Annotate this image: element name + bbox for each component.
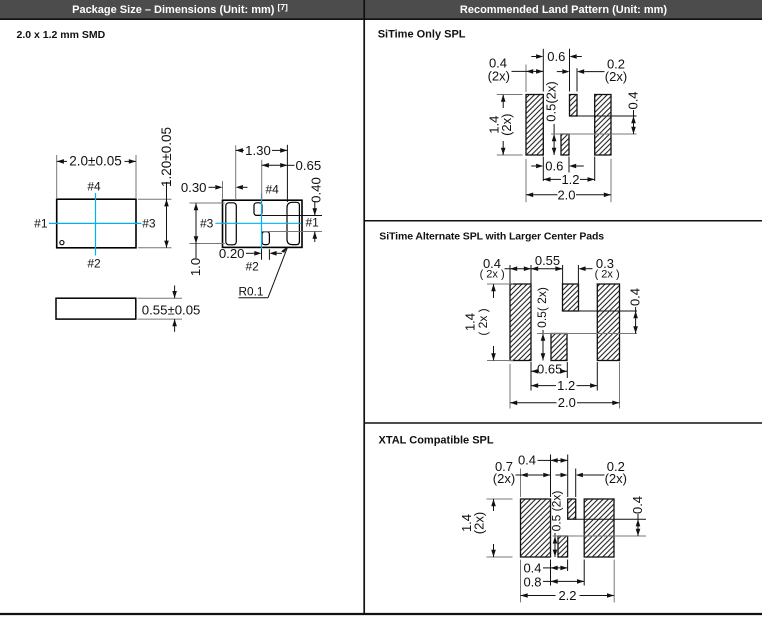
svg-text:(2x): (2x) — [605, 69, 627, 84]
svg-text:2.0: 2.0 — [558, 395, 576, 410]
svg-text:1.20±0.05: 1.20±0.05 — [159, 127, 174, 187]
svg-text:#4: #4 — [266, 183, 280, 197]
svg-text:SiTime Alternate SPL with Larg: SiTime Alternate SPL with Larger Center … — [379, 231, 604, 243]
svg-text:SiTime Only SPL: SiTime Only SPL — [378, 29, 466, 41]
svg-text:2.0: 2.0 — [557, 188, 575, 203]
svg-text:#4: #4 — [87, 180, 101, 194]
svg-text:(2x): (2x) — [488, 69, 510, 84]
svg-text:#2: #2 — [246, 259, 260, 273]
svg-text:( 2x ): ( 2x ) — [480, 269, 505, 281]
svg-text:0.4: 0.4 — [630, 496, 645, 514]
svg-text:0.8: 0.8 — [523, 574, 541, 589]
svg-text:0.55: 0.55 — [535, 253, 560, 268]
svg-text:(2x): (2x) — [499, 114, 514, 136]
svg-text:Recommended Land Pattern (Unit: Recommended Land Pattern (Unit: mm) — [460, 4, 668, 16]
svg-text:Package Size – Dimensions (Uni: Package Size – Dimensions (Unit: mm) [7] — [72, 2, 288, 16]
svg-text:0.40: 0.40 — [309, 177, 324, 203]
svg-text:(2x): (2x) — [605, 471, 627, 486]
svg-text:0.65: 0.65 — [296, 158, 322, 173]
svg-text:2.2: 2.2 — [558, 588, 576, 603]
svg-text:0.20: 0.20 — [219, 246, 245, 261]
svg-text:0.4: 0.4 — [523, 561, 541, 576]
svg-text:#3: #3 — [142, 217, 156, 231]
svg-text:0.65: 0.65 — [537, 361, 562, 376]
svg-text:2.0±0.05: 2.0±0.05 — [69, 154, 121, 169]
svg-text:1.0: 1.0 — [188, 258, 203, 276]
svg-text:0.5 (2x): 0.5 (2x) — [550, 491, 564, 532]
svg-text:0.30: 0.30 — [181, 180, 207, 195]
svg-text:2.0 x 1.2 mm SMD: 2.0 x 1.2 mm SMD — [17, 29, 106, 41]
svg-text:0.55±0.05: 0.55±0.05 — [142, 302, 201, 317]
svg-text:1.2: 1.2 — [561, 172, 579, 187]
svg-text:XTAL Compatible SPL: XTAL Compatible SPL — [379, 434, 494, 446]
svg-text:0.4: 0.4 — [518, 453, 536, 468]
svg-text:1.30: 1.30 — [245, 143, 271, 158]
svg-text:(2x): (2x) — [472, 512, 487, 534]
svg-text:1.2: 1.2 — [557, 378, 575, 393]
svg-text:R0.1: R0.1 — [239, 284, 264, 298]
svg-text:0.4: 0.4 — [628, 288, 643, 306]
svg-text:0.6: 0.6 — [547, 49, 565, 64]
svg-text:(2x): (2x) — [493, 471, 515, 486]
svg-text:#3: #3 — [200, 216, 214, 230]
svg-text:#1: #1 — [34, 217, 48, 231]
svg-text:0.4: 0.4 — [626, 91, 641, 109]
svg-text:0.5(2x): 0.5(2x) — [543, 81, 558, 121]
svg-text:( 2x ): ( 2x ) — [595, 269, 620, 281]
svg-text:#2: #2 — [87, 257, 101, 271]
svg-text:0.5( 2x): 0.5( 2x) — [535, 287, 549, 328]
svg-text:( 2x ): ( 2x ) — [476, 308, 490, 335]
svg-text:#1: #1 — [306, 215, 320, 229]
